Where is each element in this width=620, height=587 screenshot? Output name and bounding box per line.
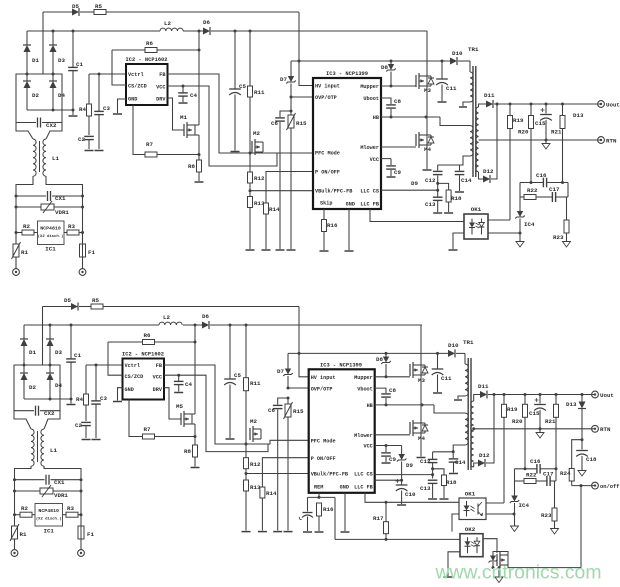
svg-text:D10: D10 [448, 342, 459, 349]
svg-text:(X2 disch.): (X2 disch.) [36, 517, 62, 522]
svg-text:LLC CS: LLC CS [360, 188, 379, 194]
svg-text:R2: R2 [23, 223, 30, 230]
svg-text:D8: D8 [376, 356, 383, 363]
svg-text:OVP/OTP: OVP/OTP [311, 386, 333, 392]
svg-text:R6: R6 [144, 332, 151, 339]
svg-text:(X2 disch.): (X2 disch.) [38, 234, 64, 239]
svg-text:C11: C11 [441, 375, 452, 382]
svg-text:D10: D10 [452, 50, 463, 57]
svg-text:D8: D8 [381, 64, 388, 71]
svg-text:R16: R16 [327, 222, 338, 229]
svg-text:HV input: HV input [315, 84, 340, 90]
svg-text:Vboot: Vboot [357, 386, 373, 392]
svg-text:CX2: CX2 [44, 410, 55, 417]
svg-text:RTN: RTN [606, 137, 617, 144]
svg-text:D11: D11 [484, 92, 495, 99]
svg-text:R15: R15 [296, 120, 307, 127]
svg-text:D5: D5 [64, 297, 71, 304]
svg-text:D9: D9 [411, 180, 418, 187]
svg-text:VDR1: VDR1 [54, 492, 68, 499]
svg-text:R7: R7 [144, 426, 151, 433]
svg-text:LLC CS: LLC CS [354, 472, 373, 478]
svg-text:R1: R1 [20, 531, 27, 538]
svg-text:C4: C4 [185, 381, 192, 388]
svg-text:M2: M2 [250, 418, 257, 425]
svg-text:R13: R13 [250, 484, 261, 491]
svg-text:C11: C11 [446, 85, 457, 92]
svg-text:C15: C15 [529, 410, 540, 417]
svg-text:D7: D7 [280, 76, 287, 83]
svg-text:D5: D5 [72, 3, 79, 10]
svg-text:VCC: VCC [363, 444, 372, 450]
svg-text:IC4: IC4 [524, 221, 535, 228]
svg-text:HB: HB [367, 403, 373, 409]
svg-text:F1: F1 [88, 249, 95, 256]
svg-text:D13: D13 [573, 112, 584, 119]
svg-text:NCP4810: NCP4810 [38, 508, 59, 514]
svg-text:R6: R6 [146, 40, 153, 47]
svg-text:OK1: OK1 [465, 491, 476, 498]
svg-text:C18: C18 [586, 456, 597, 463]
svg-text:C13: C13 [425, 201, 436, 208]
svg-text:D13: D13 [566, 401, 577, 408]
svg-text:R22: R22 [526, 472, 537, 479]
svg-text:Uout: Uout [606, 101, 620, 108]
svg-text:C4: C4 [190, 92, 197, 99]
svg-text:LLC FB: LLC FB [360, 202, 379, 208]
svg-text:C17: C17 [549, 186, 560, 193]
svg-text:L2: L2 [163, 314, 170, 321]
svg-text:M4: M4 [418, 435, 425, 442]
svg-text:VCC: VCC [156, 85, 165, 91]
svg-text:FB: FB [156, 363, 162, 369]
svg-text:OK1: OK1 [471, 206, 482, 213]
svg-text:Uboot: Uboot [363, 96, 379, 102]
svg-text:R7: R7 [146, 141, 153, 148]
svg-text:C8: C8 [389, 387, 396, 394]
svg-text:M3: M3 [418, 377, 425, 384]
svg-text:NCP4810: NCP4810 [40, 226, 61, 232]
svg-text:R4: R4 [79, 106, 86, 113]
svg-text:DRV: DRV [153, 387, 163, 393]
svg-text:D12: D12 [479, 452, 490, 459]
svg-text:VBulk/PFC-FB: VBulk/PFC-FB [311, 472, 348, 478]
svg-text:C9: C9 [389, 456, 396, 463]
svg-text:LLC FB: LLC FB [354, 484, 373, 490]
svg-text:GND: GND [128, 97, 137, 103]
svg-text:M3: M3 [424, 87, 431, 94]
svg-text:R12: R12 [250, 461, 261, 468]
svg-text:Mlower: Mlower [360, 145, 379, 151]
svg-text:L1: L1 [50, 447, 57, 454]
svg-text:C13: C13 [420, 485, 431, 492]
svg-text:R18: R18 [451, 195, 462, 202]
svg-text:R12: R12 [254, 175, 265, 182]
svg-text:CX2: CX2 [46, 122, 57, 129]
svg-text:M4: M4 [424, 146, 431, 153]
svg-text:VCC: VCC [153, 375, 162, 381]
svg-text:FB: FB [159, 72, 165, 78]
svg-text:PFC Mode: PFC Mode [311, 439, 336, 445]
svg-text:R1: R1 [21, 249, 28, 256]
svg-text:C9: C9 [394, 169, 401, 176]
svg-text:Vctrl: Vctrl [128, 72, 144, 78]
svg-text:C5: C5 [239, 83, 246, 90]
svg-text:D3: D3 [55, 349, 62, 356]
svg-text:R5: R5 [92, 297, 99, 304]
svg-text:R21: R21 [551, 129, 562, 136]
svg-text:C10: C10 [405, 491, 416, 498]
svg-text:C12: C12 [425, 177, 436, 184]
svg-text:D3: D3 [58, 57, 65, 64]
svg-text:R11: R11 [250, 380, 261, 387]
svg-text:R11: R11 [254, 89, 265, 96]
svg-text:R17: R17 [373, 515, 384, 522]
svg-text:R19: R19 [513, 117, 524, 124]
svg-text:CS/ZCD: CS/ZCD [125, 374, 144, 380]
svg-text:L2: L2 [164, 20, 171, 27]
svg-text:R20: R20 [512, 418, 523, 425]
svg-text:R22: R22 [527, 187, 538, 194]
svg-text:R24: R24 [560, 470, 571, 477]
svg-text:IC1: IC1 [43, 528, 54, 535]
svg-text:REM: REM [314, 484, 323, 490]
svg-text:C6: C6 [268, 407, 275, 414]
svg-text:C3: C3 [100, 395, 107, 402]
svg-text:VCC: VCC [370, 157, 379, 163]
svg-text:M1: M1 [180, 114, 187, 121]
svg-text:IC2 - NCP1602: IC2 - NCP1602 [122, 352, 164, 358]
svg-text:OVP/OTP: OVP/OTP [315, 95, 337, 101]
svg-text:Mupper: Mupper [360, 84, 379, 90]
svg-text:R21: R21 [545, 418, 556, 425]
svg-text:VDR1: VDR1 [55, 209, 69, 216]
svg-text:L1: L1 [52, 155, 59, 162]
svg-text:C1: C1 [74, 352, 81, 359]
svg-text:RTN: RTN [600, 426, 611, 433]
svg-text:C16: C16 [536, 172, 547, 179]
svg-text:R8: R8 [184, 448, 191, 455]
svg-text:D2: D2 [29, 384, 36, 391]
svg-text:IC2 - NCP1602: IC2 - NCP1602 [125, 57, 167, 63]
svg-text:D11: D11 [478, 383, 489, 390]
svg-text:R3: R3 [68, 223, 75, 230]
svg-text:IC3 - NCP1399: IC3 - NCP1399 [326, 71, 368, 77]
svg-text:P ON/OFF: P ON/OFF [311, 456, 336, 462]
svg-text:R14: R14 [269, 206, 280, 213]
svg-text:R20: R20 [518, 129, 529, 136]
svg-text:PFC Mode: PFC Mode [315, 151, 340, 157]
svg-text:C14: C14 [461, 177, 472, 184]
svg-text:D4: D4 [55, 382, 62, 389]
svg-text:R4: R4 [76, 396, 83, 403]
svg-text:DRV: DRV [156, 97, 166, 103]
svg-text:R5: R5 [95, 3, 102, 10]
svg-text:Vctrl: Vctrl [125, 363, 141, 369]
svg-text:CX1: CX1 [55, 195, 66, 202]
svg-text:R23: R23 [553, 234, 564, 241]
svg-text:VBulk/PFC-FB: VBulk/PFC-FB [315, 188, 352, 194]
svg-text:R2: R2 [21, 505, 28, 512]
svg-text:TR1: TR1 [468, 46, 479, 53]
svg-text:D2: D2 [32, 92, 39, 99]
svg-text:C12: C12 [420, 458, 431, 465]
svg-text:D7: D7 [277, 368, 284, 375]
svg-text:HB: HB [373, 115, 379, 121]
svg-text:Mlower: Mlower [354, 433, 373, 439]
svg-text:C2: C2 [78, 136, 85, 143]
svg-text:M5: M5 [176, 403, 183, 410]
svg-text:GND: GND [346, 202, 355, 208]
svg-text:D1: D1 [32, 57, 39, 64]
svg-text:C17: C17 [543, 471, 554, 478]
svg-text:CX1: CX1 [54, 479, 65, 486]
svg-text:GND: GND [340, 484, 349, 490]
svg-text:C6: C6 [271, 120, 278, 127]
svg-text:Uout: Uout [600, 392, 614, 399]
svg-text:C3: C3 [103, 105, 110, 112]
svg-text:TR1: TR1 [463, 339, 474, 346]
svg-text:C16: C16 [530, 458, 541, 465]
svg-text:CS/ZCD: CS/ZCD [128, 84, 147, 90]
svg-text:F1: F1 [87, 531, 94, 538]
svg-text:on/off: on/off [600, 484, 619, 490]
svg-text:R23: R23 [541, 512, 552, 519]
svg-text:R3: R3 [67, 505, 74, 512]
svg-text:C14: C14 [455, 459, 466, 466]
svg-text:P ON/OFF: P ON/OFF [315, 170, 340, 176]
svg-text:R15: R15 [293, 408, 304, 415]
svg-text:IC1: IC1 [45, 246, 56, 253]
svg-text:C8: C8 [394, 98, 401, 105]
svg-text:D6: D6 [202, 313, 209, 320]
svg-text:R14: R14 [266, 490, 277, 497]
svg-text:R19: R19 [507, 406, 518, 413]
svg-text:C1: C1 [76, 61, 83, 68]
svg-text:www.cntronics.com: www.cntronics.com [435, 562, 602, 584]
svg-text:R8: R8 [188, 163, 195, 170]
svg-text:D12: D12 [483, 168, 494, 175]
svg-text:HV input: HV input [311, 375, 336, 381]
svg-text:D6: D6 [203, 19, 210, 26]
svg-text:OK2: OK2 [465, 526, 476, 533]
svg-text:IC4: IC4 [519, 502, 530, 509]
svg-text:Skip: Skip [320, 201, 332, 207]
svg-text:R18: R18 [446, 479, 457, 486]
svg-text:C5: C5 [234, 372, 241, 379]
svg-text:Mupper: Mupper [354, 375, 373, 381]
svg-text:D9: D9 [406, 462, 413, 469]
svg-text:C15: C15 [535, 120, 546, 127]
svg-text:IC3 - NCP1399: IC3 - NCP1399 [320, 362, 362, 368]
svg-text:D1: D1 [29, 349, 36, 356]
svg-text:M2: M2 [253, 130, 260, 137]
svg-text:C2: C2 [75, 422, 82, 429]
svg-text:R16: R16 [323, 506, 334, 513]
svg-text:GND: GND [125, 387, 134, 393]
